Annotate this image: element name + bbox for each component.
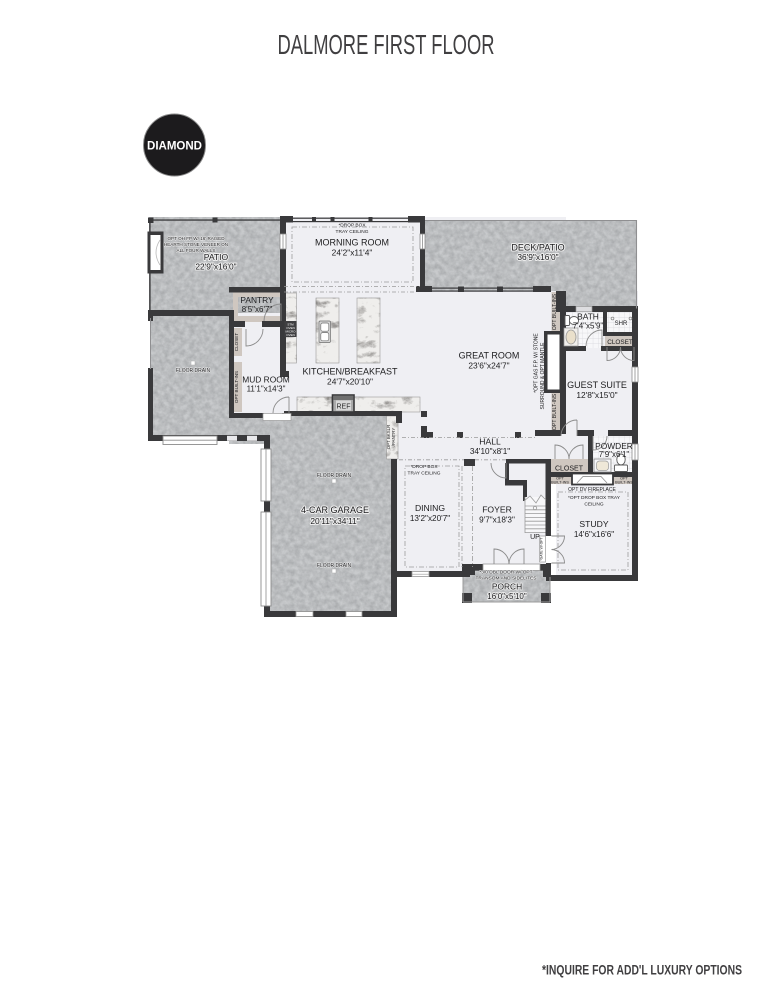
svg-text:13'2"x20'7": 13'2"x20'7"	[410, 514, 450, 523]
svg-text:TRAY CEILING: TRAY CEILING	[336, 229, 369, 235]
svg-text:8'5"x6'7": 8'5"x6'7"	[242, 305, 273, 314]
svg-text:DECK/PATIO: DECK/PATIO	[511, 243, 564, 253]
svg-text:TRAY CEILING: TRAY CEILING	[408, 471, 441, 477]
svg-text:FLOOR DRAIN: FLOOR DRAIN	[317, 563, 352, 569]
svg-text:22'9"x16'0": 22'9"x16'0"	[195, 262, 236, 272]
svg-text:PANTRY: PANTRY	[240, 295, 274, 305]
svg-text:CLOSET: CLOSET	[555, 466, 584, 473]
svg-text:OPT DV FIREPLACE: OPT DV FIREPLACE	[568, 487, 616, 493]
svg-text:REF: REF	[337, 404, 351, 411]
svg-text:16'0"x5'10": 16'0"x5'10"	[487, 592, 527, 601]
svg-text:KITCHEN/BREAKFAST: KITCHEN/BREAKFAST	[302, 367, 398, 377]
svg-text:CEILING: CEILING	[584, 502, 603, 508]
svg-text:CLOSET: CLOSET	[607, 339, 633, 346]
svg-text:DALMORE FIRST FLOOR: DALMORE FIRST FLOOR	[278, 29, 495, 60]
svg-text:*3/0 DBL DOOR W/ OPT: *3/0 DBL DOOR W/ OPT	[479, 570, 532, 576]
svg-text:24'7"x20'10": 24'7"x20'10"	[327, 377, 373, 387]
svg-text:CLOSET: CLOSET	[234, 333, 239, 352]
svg-text:DIAMOND: DIAMOND	[147, 139, 202, 153]
svg-text:GUEST SUITE: GUEST SUITE	[567, 380, 627, 390]
svg-text:MORNING ROOM: MORNING ROOM	[315, 238, 389, 248]
svg-text:HEARTH STONE VENEER ON: HEARTH STONE VENEER ON	[164, 242, 228, 247]
svg-text:*OPT DROP BOX TRAY: *OPT DROP BOX TRAY	[568, 495, 621, 501]
svg-text:*DROP BOX: *DROP BOX	[338, 223, 366, 229]
svg-text:SHR: SHR	[615, 321, 628, 327]
svg-text:7'4"x5'9": 7'4"x5'9"	[573, 322, 604, 331]
svg-text:BATH: BATH	[577, 312, 599, 322]
svg-text:PORCH: PORCH	[492, 582, 522, 592]
svg-text:4-CAR GARAGE: 4-CAR GARAGE	[301, 505, 369, 515]
svg-text:*GATE W/ OPT: *GATE W/ OPT	[540, 537, 544, 560]
svg-text:OPT BUILT-INS: OPT BUILT-INS	[552, 393, 558, 430]
svg-text:36'9"x16'0": 36'9"x16'0"	[517, 252, 558, 262]
svg-text:PATIO: PATIO	[204, 252, 229, 262]
svg-text:/PANTRY: /PANTRY	[391, 428, 396, 447]
svg-text:*INQUIRE FOR ADD'L LUXURY OPTI: *INQUIRE FOR ADD'L LUXURY OPTIONS	[542, 963, 742, 978]
svg-text:STUDY: STUDY	[579, 519, 608, 529]
svg-text:FLOOR DRAIN: FLOOR DRAIN	[176, 368, 211, 374]
svg-text:FOYER: FOYER	[482, 505, 512, 515]
svg-text:OPT BUILT-INS: OPT BUILT-INS	[234, 371, 239, 403]
svg-text:GREAT ROOM: GREAT ROOM	[459, 351, 520, 361]
svg-text:HALL: HALL	[479, 437, 501, 447]
svg-text:BUILT-INS: BUILT-INS	[551, 481, 569, 485]
svg-text:*OPT GAS F.P. W/ STONE: *OPT GAS F.P. W/ STONE	[534, 333, 540, 393]
svg-text:OPT BUILT-INS: OPT BUILT-INS	[552, 293, 558, 330]
svg-text:24'2"x11'4": 24'2"x11'4"	[332, 248, 373, 258]
svg-text:20'11"x34'11": 20'11"x34'11"	[310, 516, 359, 526]
svg-text:FLOOR DRAIN: FLOOR DRAIN	[317, 473, 352, 479]
svg-text:12'8"x15'0": 12'8"x15'0"	[576, 390, 617, 400]
svg-text:OPT OH FP W/ 16' RAISED: OPT OH FP W/ 16' RAISED	[167, 236, 225, 241]
svg-text:34'10"x8'1": 34'10"x8'1"	[470, 447, 510, 456]
svg-text:7'9"x6'1": 7'9"x6'1"	[599, 450, 630, 459]
svg-text:MUD ROOM: MUD ROOM	[242, 375, 289, 385]
svg-text:23'6"x24'7": 23'6"x24'7"	[468, 361, 509, 371]
svg-text:OVEN: OVEN	[286, 333, 295, 337]
svg-text:14'6"x16'6": 14'6"x16'6"	[574, 530, 614, 539]
svg-text:11'1"x14'3": 11'1"x14'3"	[247, 385, 286, 394]
svg-text:BUILT-INS: BUILT-INS	[615, 481, 633, 485]
svg-text:SURROUND & OPT MANTLE: SURROUND & OPT MANTLE	[540, 342, 546, 410]
svg-text:*DROP BOX: *DROP BOX	[410, 464, 438, 470]
svg-text:9'7"x18'3": 9'7"x18'3"	[479, 516, 515, 525]
svg-text:DINING: DINING	[415, 503, 445, 513]
